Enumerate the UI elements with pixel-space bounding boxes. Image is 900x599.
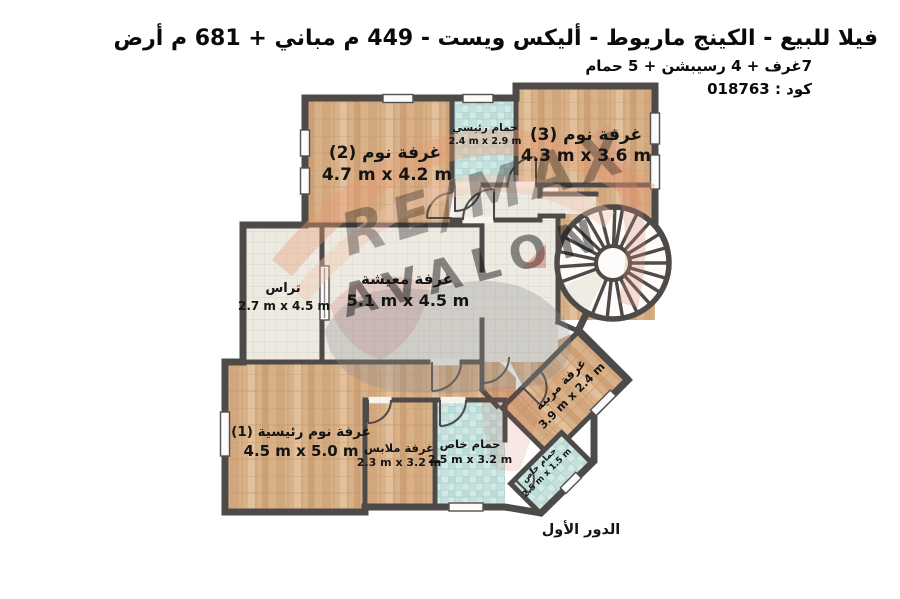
- window: [651, 113, 660, 144]
- window: [449, 503, 483, 511]
- master-bedroom-label: غرفة نوم رئيسية (1): [231, 424, 371, 440]
- bedroom-3-dims: 4.3 m x 3.6 m: [521, 146, 651, 166]
- main-bathroom-label: حمام رئيسي: [452, 122, 517, 134]
- window: [221, 412, 230, 456]
- private-bathroom-dims: 2.5 m x 3.2 m: [428, 453, 512, 466]
- master-bedroom-dims: 4.5 m x 5.0 m: [244, 442, 359, 460]
- window: [383, 95, 413, 103]
- bedroom-2-dims: 4.7 m x 4.2 m: [322, 165, 452, 185]
- floor-name-label: الدور الأول: [542, 520, 621, 538]
- terrace-label: تراس: [265, 281, 300, 296]
- terrace-dims: 2.7 m x 4.5 m: [238, 299, 330, 313]
- window: [301, 130, 310, 156]
- bedroom-2-label: غرفة نوم (2): [329, 143, 441, 163]
- dressing-room-label: غرفة ملابس: [364, 441, 434, 455]
- private-bathroom-label: حمام خاص: [440, 437, 501, 451]
- bedroom-3-label: غرفة نوم (3): [530, 125, 642, 145]
- floorplan-drawing: RE/MAX AVALON غرفة نوم (2) 4.7 m x 4.2 m…: [0, 0, 900, 599]
- main-bathroom-dims: 2.4 m x 2.9 m: [449, 136, 522, 147]
- living-room-label: غرفة معيشة: [361, 270, 453, 288]
- window: [301, 168, 310, 194]
- living-room-dims: 5.1 m x 4.5 m: [347, 291, 470, 310]
- floorplan-page: فيلا للبيع - الكينج ماريوط - أليكس ويست …: [0, 0, 900, 599]
- window: [463, 95, 493, 103]
